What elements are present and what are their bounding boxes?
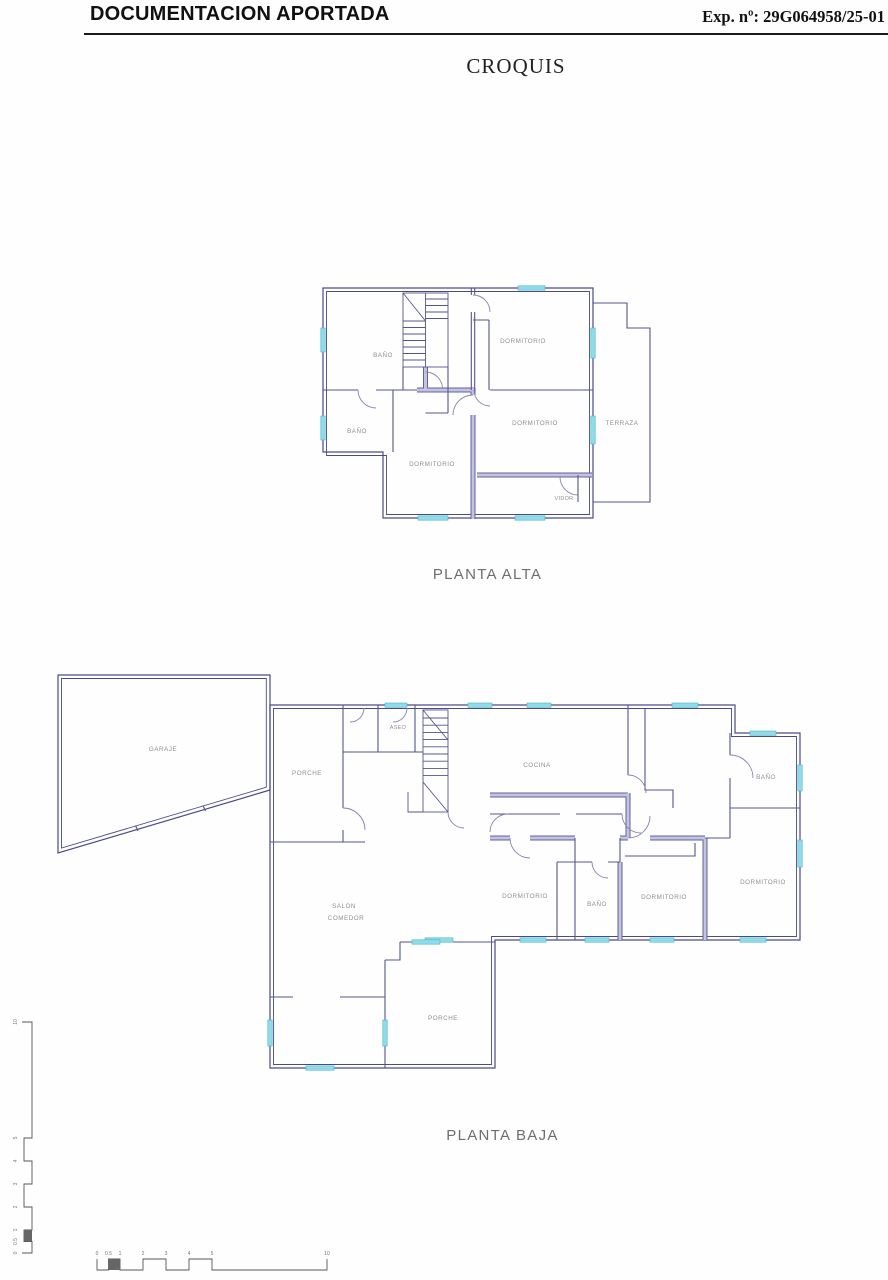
room-label-dormitorio-baja-3: DORMITORIO [740,879,786,886]
alta-doors [358,295,578,495]
vscale-label-05: 0.5 [13,1238,19,1245]
expedient-number: Exp. nº: 29G064958/25-01 [702,7,885,27]
room-label-porche-top: PORCHE [292,770,322,777]
scale-bar-horizontal: 0 0.5 1 2 3 4 5 10 [85,1244,350,1278]
room-label-dormitorio-alta-2: DORMITORIO [409,461,455,468]
vscale-label-10: 10 [13,1019,19,1025]
caption-planta-baja: PLANTA BAJA [395,1127,610,1144]
room-label-vidor: VIDOR [555,496,574,502]
hscale-label-3: 3 [165,1251,168,1257]
hscale-label-10: 10 [324,1251,330,1257]
vscale-label-1: 1 [13,1228,19,1231]
room-label-dormitorio-baja-2: DORMITORIO [641,894,687,901]
alta-windows [321,286,595,520]
planta-baja-drawing: GARAJE PORCHE ASEO COCINA BAÑO SALON COM… [40,660,820,1080]
room-label-dormitorio-alta-3: DORMITORIO [512,420,558,427]
vscale-label-0: 0 [13,1251,19,1254]
alta-terraza-wall [593,303,650,502]
planta-alta-drawing: BAÑO DORMITORIO BAÑO DORMITORIO DORMITOR… [300,270,680,530]
baja-garage [58,675,270,853]
alta-stairs [403,293,448,367]
hscale-label-1: 1 [119,1251,122,1257]
room-label-aseo: ASEO [390,725,407,731]
vscale-label-2: 2 [13,1205,19,1208]
hscale-label-2: 2 [142,1251,145,1257]
hscale-label-4: 4 [188,1251,191,1257]
room-label-dormitorio-baja-1: DORMITORIO [502,893,548,900]
scale-bar-vertical: 10 5 4 3 2 1 0.5 0 [2,1012,47,1268]
baja-stairs [408,710,448,812]
hscale-label-0: 0 [96,1251,99,1257]
room-label-garaje: GARAJE [149,746,177,753]
room-label-salon-line1: SALON [332,903,356,910]
document-header-title: DOCUMENTACION APORTADA [90,3,390,26]
vscale-label-4: 4 [13,1159,19,1162]
room-label-terraza: TERRAZA [606,420,639,427]
baja-interior-walls [270,705,800,1068]
room-label-cocina: COCINA [523,762,551,769]
vscale-label-5: 5 [13,1136,19,1139]
room-label-dormitorio-alta-1: DORMITORIO [500,338,546,345]
room-label-bano-alta-2: BAÑO [347,426,367,435]
room-label-bano-baja-2: BAÑO [587,899,607,908]
room-label-bano-alta-1: BAÑO [373,350,393,359]
room-label-bano-baja-1: BAÑO [756,772,776,781]
document-page: DOCUMENTACION APORTADA Exp. nº: 29G06495… [0,0,888,1280]
room-label-salon-line2: COMEDOR [328,915,364,922]
vscale-label-3: 3 [13,1182,19,1185]
hscale-label-5: 5 [211,1251,214,1257]
header-rule [84,33,888,35]
caption-planta-alta: PLANTA ALTA [380,566,595,583]
hscale-label-05: 0.5 [105,1251,112,1257]
room-label-porche-bottom: PORCHE [428,1015,458,1022]
baja-outer-wall [270,705,800,1068]
page-title: CROQUIS [416,54,616,79]
baja-windows [268,703,802,1070]
